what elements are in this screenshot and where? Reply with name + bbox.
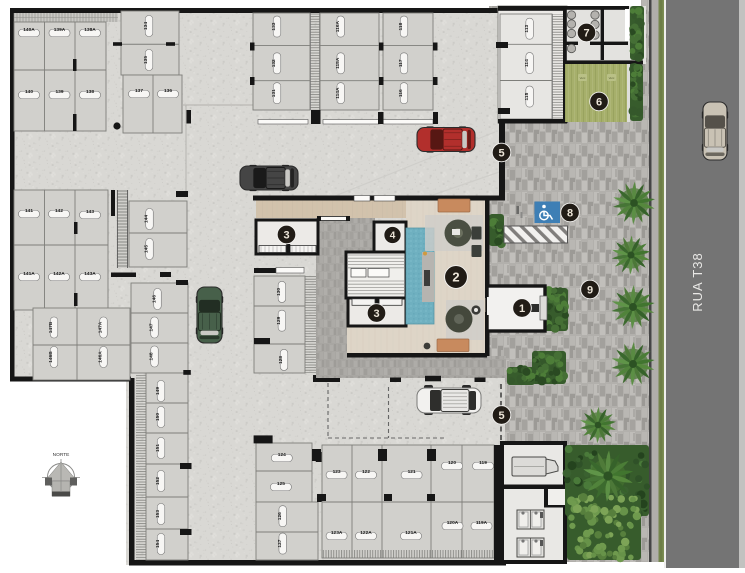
svg-text:146A: 146A (98, 351, 104, 363)
svg-text:146: 146 (152, 295, 158, 303)
svg-text:144: 144 (144, 215, 150, 223)
svg-text:143A: 143A (84, 271, 96, 277)
svg-text:139A: 139A (54, 27, 66, 33)
svg-text:131: 131 (271, 89, 277, 97)
svg-text:119A: 119A (476, 520, 488, 526)
svg-text:120A: 120A (447, 520, 459, 526)
svg-text:143: 143 (86, 209, 94, 215)
svg-text:116A: 116A (335, 20, 341, 32)
svg-text:150: 150 (155, 413, 161, 421)
svg-text:147B: 147B (48, 321, 54, 333)
svg-text:122: 122 (362, 469, 370, 475)
svg-text:2: 2 (452, 270, 459, 285)
svg-text:114: 114 (524, 59, 530, 67)
svg-text:122A: 122A (360, 530, 372, 536)
svg-text:154: 154 (155, 540, 161, 548)
svg-text:114A: 114A (335, 87, 341, 99)
svg-text:140: 140 (25, 89, 33, 95)
svg-text:138A: 138A (84, 27, 96, 33)
svg-text:5: 5 (498, 147, 504, 159)
svg-text:117: 117 (398, 59, 404, 67)
svg-text:123: 123 (333, 469, 341, 475)
svg-text:3: 3 (373, 308, 379, 320)
svg-text:142A: 142A (53, 271, 65, 277)
svg-text:141: 141 (25, 208, 33, 214)
svg-text:115: 115 (524, 92, 530, 100)
svg-text:141A: 141A (23, 271, 35, 277)
svg-text:115A: 115A (335, 57, 341, 69)
svg-text:124: 124 (278, 452, 286, 458)
svg-text:148: 148 (149, 352, 155, 360)
svg-text:6: 6 (596, 96, 602, 108)
svg-text:121: 121 (408, 469, 416, 475)
svg-text:NORTE: NORTE (53, 452, 70, 458)
svg-text:139: 139 (55, 89, 63, 95)
svg-text:146B: 146B (48, 351, 54, 363)
svg-text:123A: 123A (331, 530, 343, 536)
svg-text:137: 137 (135, 88, 143, 94)
svg-text:138: 138 (86, 89, 94, 95)
svg-text:149: 149 (155, 387, 161, 395)
svg-text:127: 127 (277, 539, 283, 547)
svg-text:1: 1 (519, 303, 525, 315)
svg-text:121A: 121A (405, 530, 417, 536)
svg-text:3: 3 (283, 229, 289, 241)
svg-text:RUA T38: RUA T38 (690, 252, 705, 312)
svg-text:120: 120 (448, 460, 456, 466)
svg-text:140A: 140A (23, 27, 35, 33)
svg-text:153: 153 (155, 510, 161, 518)
svg-text:5: 5 (498, 410, 504, 422)
svg-text:8: 8 (567, 207, 573, 219)
svg-text:152: 152 (155, 477, 161, 485)
svg-text:151: 151 (155, 444, 161, 452)
svg-text:126: 126 (277, 512, 283, 520)
svg-text:132: 132 (271, 59, 277, 67)
svg-text:116: 116 (398, 89, 404, 97)
svg-text:129: 129 (276, 316, 282, 324)
svg-text:130: 130 (276, 288, 282, 296)
svg-text:133: 133 (271, 22, 277, 30)
svg-text:Veíc: Veíc (609, 76, 615, 80)
svg-text:119: 119 (479, 460, 487, 466)
svg-text:128: 128 (278, 356, 284, 364)
svg-text:147: 147 (149, 323, 155, 331)
svg-text:113: 113 (524, 25, 530, 33)
svg-text:4: 4 (390, 231, 396, 242)
svg-text:7: 7 (583, 27, 589, 39)
svg-text:125: 125 (277, 481, 285, 487)
svg-text:145: 145 (144, 245, 150, 253)
svg-text:134: 134 (143, 22, 149, 30)
svg-text:9: 9 (587, 284, 593, 296)
svg-text:118: 118 (398, 22, 404, 30)
svg-text:136: 136 (164, 88, 172, 94)
svg-text:142: 142 (55, 208, 63, 214)
svg-text:147A: 147A (98, 321, 104, 333)
svg-text:135: 135 (143, 56, 149, 64)
svg-text:Veíc: Veíc (580, 76, 586, 80)
